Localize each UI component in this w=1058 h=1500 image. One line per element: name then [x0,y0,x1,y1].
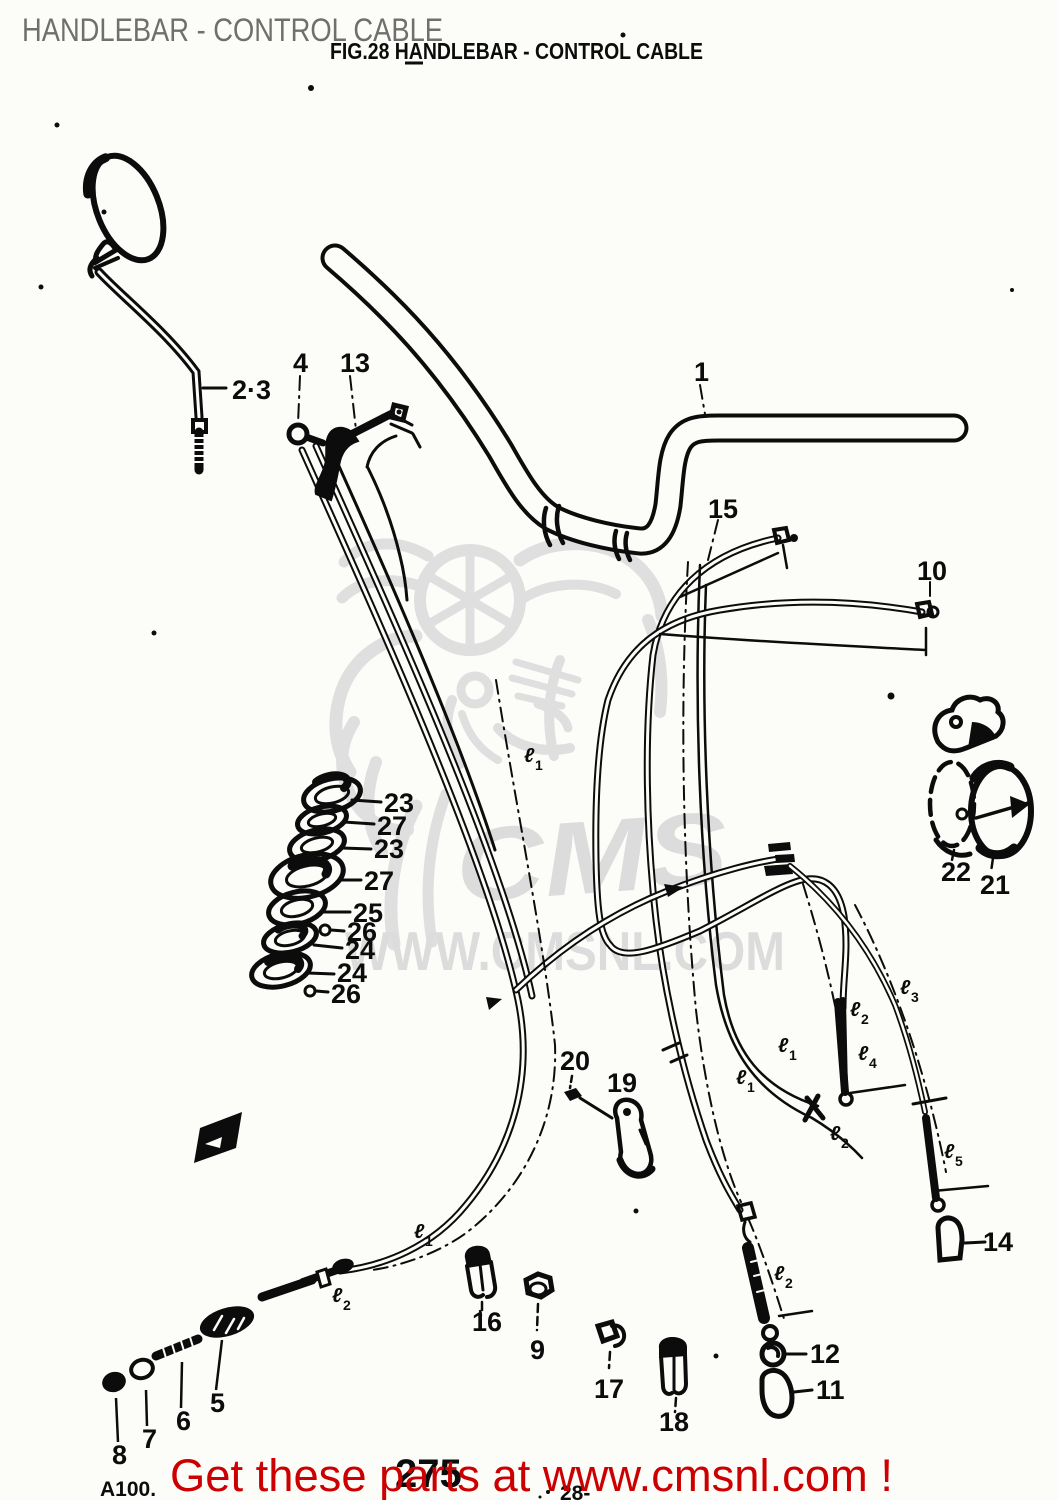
svg-text:ℓ: ℓ [414,1221,425,1243]
svg-text:12: 12 [810,1339,840,1369]
svg-text:5: 5 [955,1153,963,1169]
svg-text:2: 2 [785,1275,793,1291]
svg-text:2: 2 [841,1135,849,1151]
svg-text:ℓ: ℓ [736,1067,747,1089]
svg-text:7: 7 [142,1424,157,1454]
svg-text:26: 26 [331,979,361,1009]
svg-text:2·3: 2·3 [232,375,271,405]
svg-text:6: 6 [176,1406,191,1436]
svg-text:9: 9 [530,1335,545,1365]
svg-text:ℓ: ℓ [858,1043,869,1065]
svg-text:ℓ: ℓ [774,1263,785,1285]
svg-text:17: 17 [594,1374,624,1404]
svg-text:19: 19 [607,1068,637,1098]
svg-text:11: 11 [816,1375,845,1405]
svg-text:10: 10 [917,556,947,586]
svg-text:14: 14 [983,1227,1013,1257]
svg-text:ℓ: ℓ [850,999,861,1021]
svg-text:4: 4 [869,1055,877,1071]
svg-text:1: 1 [694,357,709,387]
svg-text:13: 13 [340,348,370,378]
svg-text:ℓ: ℓ [900,977,911,999]
svg-text:1: 1 [535,757,543,773]
svg-text:1: 1 [747,1079,755,1095]
svg-text:1: 1 [425,1233,433,1249]
svg-text:3: 3 [911,989,919,1005]
svg-text:ℓ: ℓ [830,1123,841,1145]
svg-text:21: 21 [980,870,1010,900]
svg-text:2: 2 [861,1011,869,1027]
svg-text:ℓ: ℓ [944,1141,955,1163]
svg-text:16: 16 [472,1307,502,1337]
svg-text:5: 5 [210,1388,225,1418]
svg-text:15: 15 [708,494,738,524]
svg-text:ℓ: ℓ [524,745,535,767]
svg-text:FIG.28 HANDLEBAR - CONTROL CA: FIG.28 HANDLEBAR - CONTROL CABLE [330,38,703,64]
svg-text:20: 20 [560,1046,590,1076]
svg-text:1: 1 [789,1047,797,1063]
svg-text:ℓ: ℓ [778,1035,789,1057]
svg-text:22: 22 [941,857,971,887]
svg-text:4: 4 [293,348,308,378]
svg-text:A100.: A100. [100,1478,156,1500]
svg-text:2: 2 [343,1297,351,1313]
svg-text:ℓ: ℓ [332,1285,343,1307]
svg-text:18: 18 [659,1407,689,1437]
svg-text:8: 8 [112,1440,127,1470]
svg-text:27: 27 [364,866,394,896]
svg-text:Get these parts at www.cmsnl.c: Get these parts at www.cmsnl.com ! [170,1450,893,1500]
svg-text:23: 23 [374,834,404,864]
